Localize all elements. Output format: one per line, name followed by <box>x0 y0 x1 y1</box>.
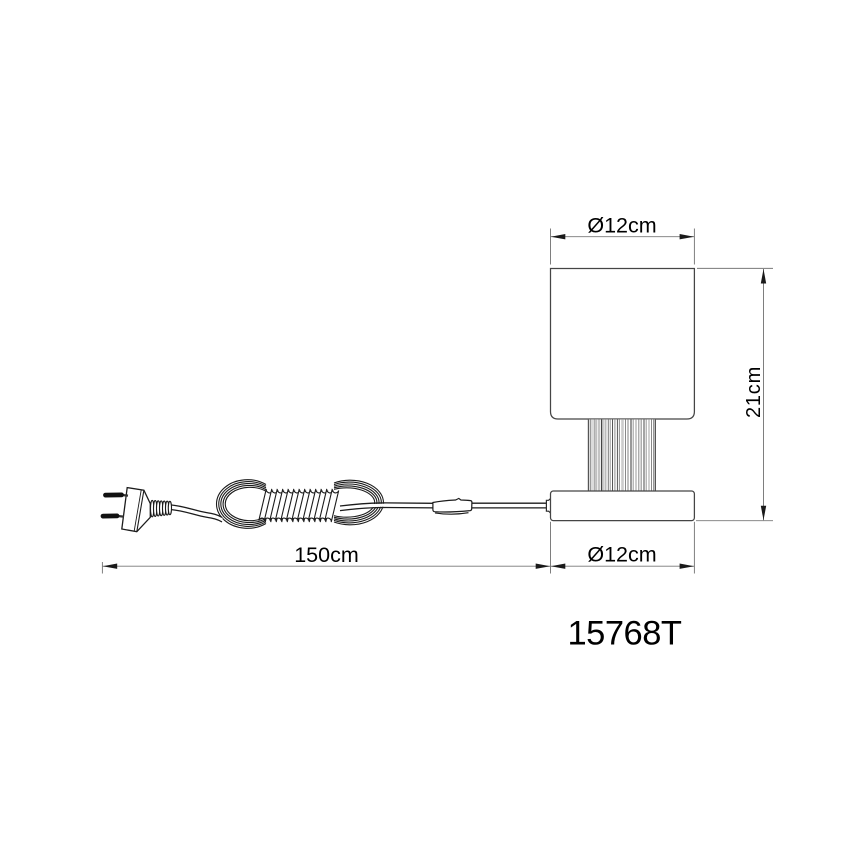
svg-text:Ø12cm: Ø12cm <box>587 214 656 238</box>
svg-text:21cm: 21cm <box>743 366 765 418</box>
svg-text:15768T: 15768T <box>567 615 681 653</box>
svg-text:Ø12cm: Ø12cm <box>587 543 656 567</box>
svg-text:150cm: 150cm <box>294 543 359 567</box>
